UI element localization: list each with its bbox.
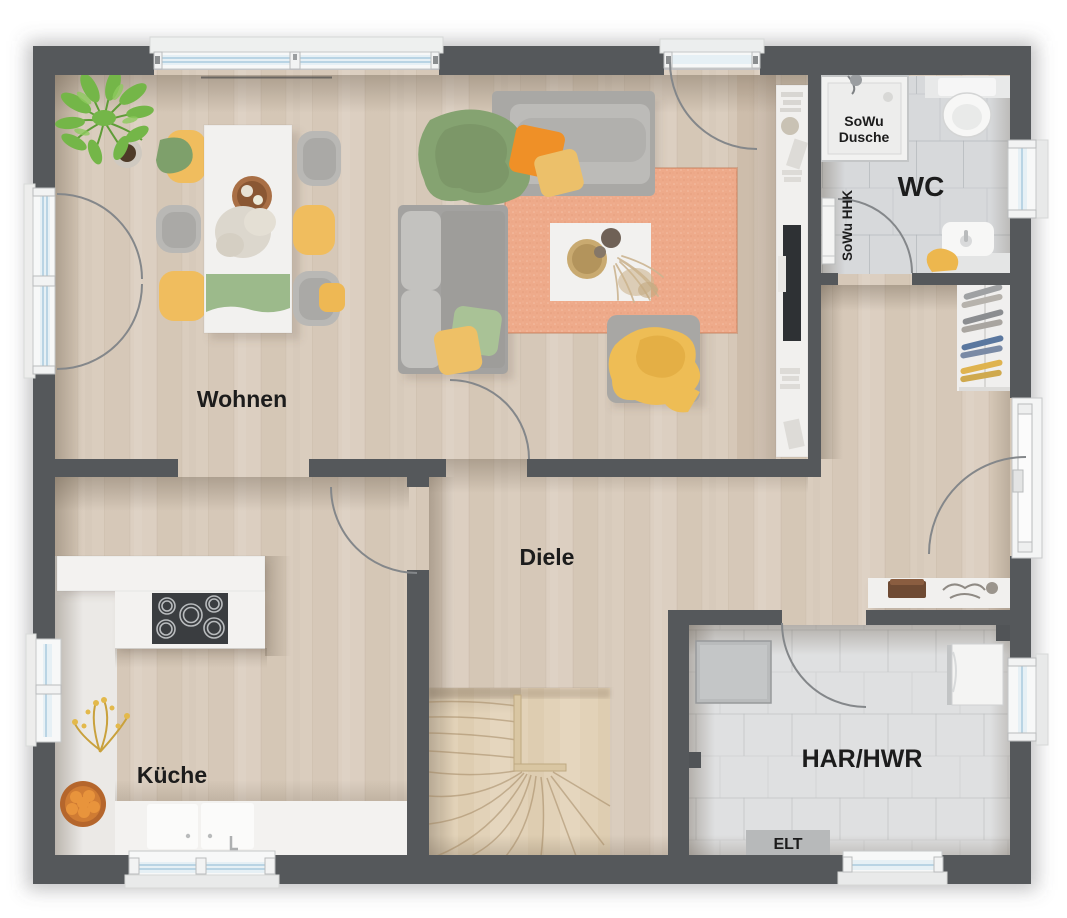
- svg-text:ELT: ELT: [773, 836, 802, 853]
- svg-text:Wohnen: Wohnen: [197, 386, 287, 412]
- svg-text:SoWu: SoWu: [844, 113, 883, 129]
- svg-text:Diele: Diele: [520, 544, 575, 570]
- svg-text:Dusche: Dusche: [839, 129, 890, 145]
- svg-text:WC: WC: [898, 171, 945, 202]
- svg-text:HAR/HWR: HAR/HWR: [802, 745, 923, 773]
- svg-text:Küche: Küche: [137, 762, 207, 788]
- svg-text:SoWu HHK: SoWu HHK: [840, 190, 855, 261]
